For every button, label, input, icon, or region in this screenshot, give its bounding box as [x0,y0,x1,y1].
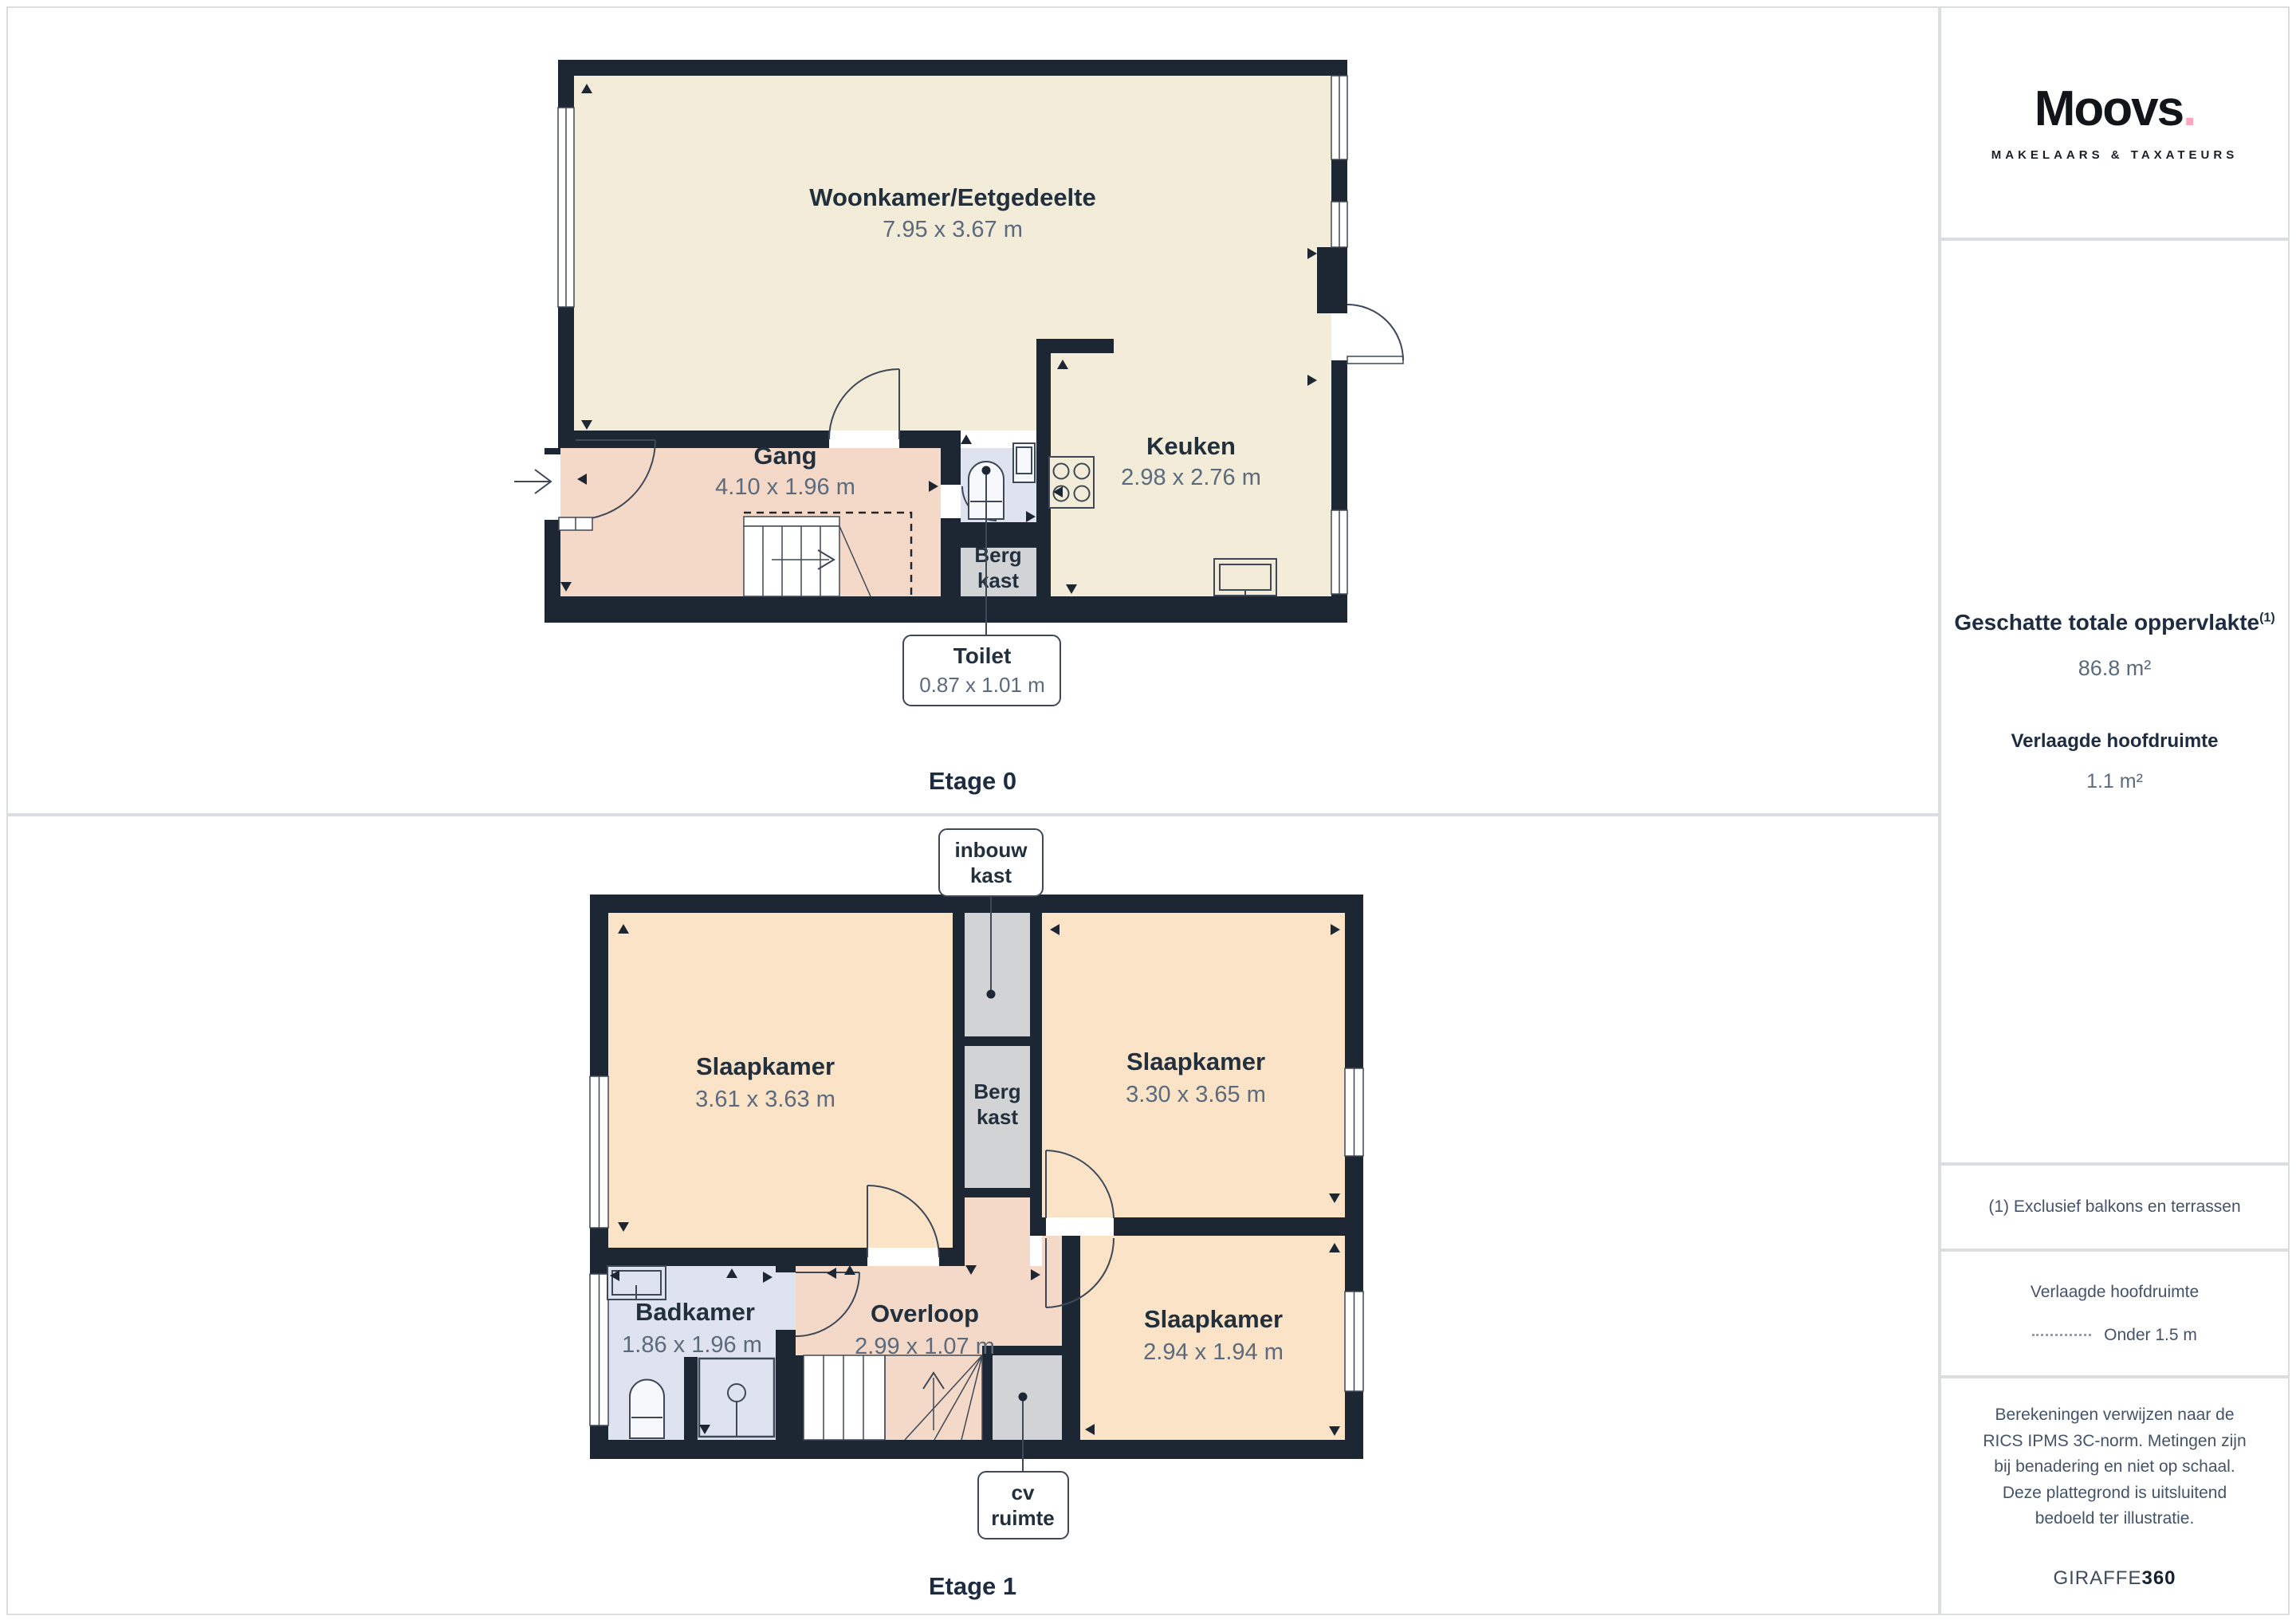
callout-label: kast [970,863,1012,887]
room-cv [993,1355,1062,1440]
callout-dims: 0.87 x 1.01 m [919,673,1045,697]
room-dims: 2.94 x 1.94 m [1143,1339,1284,1365]
room-dims: 3.30 x 3.65 m [1126,1082,1266,1107]
room-dims: 2.98 x 2.76 m [1121,465,1261,490]
floor1-plan: Slaapkamer 3.61 x 3.63 m Slaapkamer 3.30… [590,829,1363,1600]
room-label: Slaapkamer [1126,1048,1265,1075]
callout-label: cv [1012,1480,1035,1504]
room-label: Woonkamer/Eetgedeelte [809,183,1095,211]
room-label: kast [977,1105,1018,1129]
room-inbouwkast [965,913,1030,1036]
floorplan-page: Moovs. MAKELAARS & TAXATEURS Geschatte t… [0,0,2296,1624]
kitchen-exterior-door-arc [1347,305,1403,360]
room-dims: 2.99 x 1.07 m [855,1334,995,1359]
stove-fixture [1049,457,1094,508]
room-label: Gang [753,442,816,470]
room-slaapkamer-onder [1080,1236,1345,1440]
floor0-plan: Woonkamer/Eetgedeelte 7.95 x 3.67 m Gang… [514,60,1403,795]
room-label: kast [977,568,1019,592]
room-label: Keuken [1146,432,1236,460]
callout-label: ruimte [991,1506,1054,1530]
room-label: Slaapkamer [696,1052,835,1080]
room-label: Slaapkamer [1144,1305,1283,1333]
room-label: Overloop [871,1300,979,1327]
corridor [965,1197,1030,1266]
room-label: Berg [973,1079,1020,1103]
floorplans-drawing: Woonkamer/Eetgedeelte 7.95 x 3.67 m Gang… [0,0,2296,1624]
room-dims: 4.10 x 1.96 m [715,474,855,500]
floor1-label: Etage 1 [929,1572,1016,1600]
callout-label: Toilet [953,643,1012,668]
room-label: Berg [974,543,1021,567]
room-label: Badkamer [635,1298,755,1326]
room-dims: 7.95 x 3.67 m [883,217,1023,242]
room-slaapkamer-links [608,913,953,1248]
room-dims: 1.86 x 1.96 m [622,1332,762,1358]
floor0-label: Etage 0 [929,767,1016,795]
room-dims: 3.61 x 3.63 m [695,1087,835,1112]
callout-label: inbouw [955,838,1028,862]
bathroom-toilet-fixture [630,1380,664,1439]
